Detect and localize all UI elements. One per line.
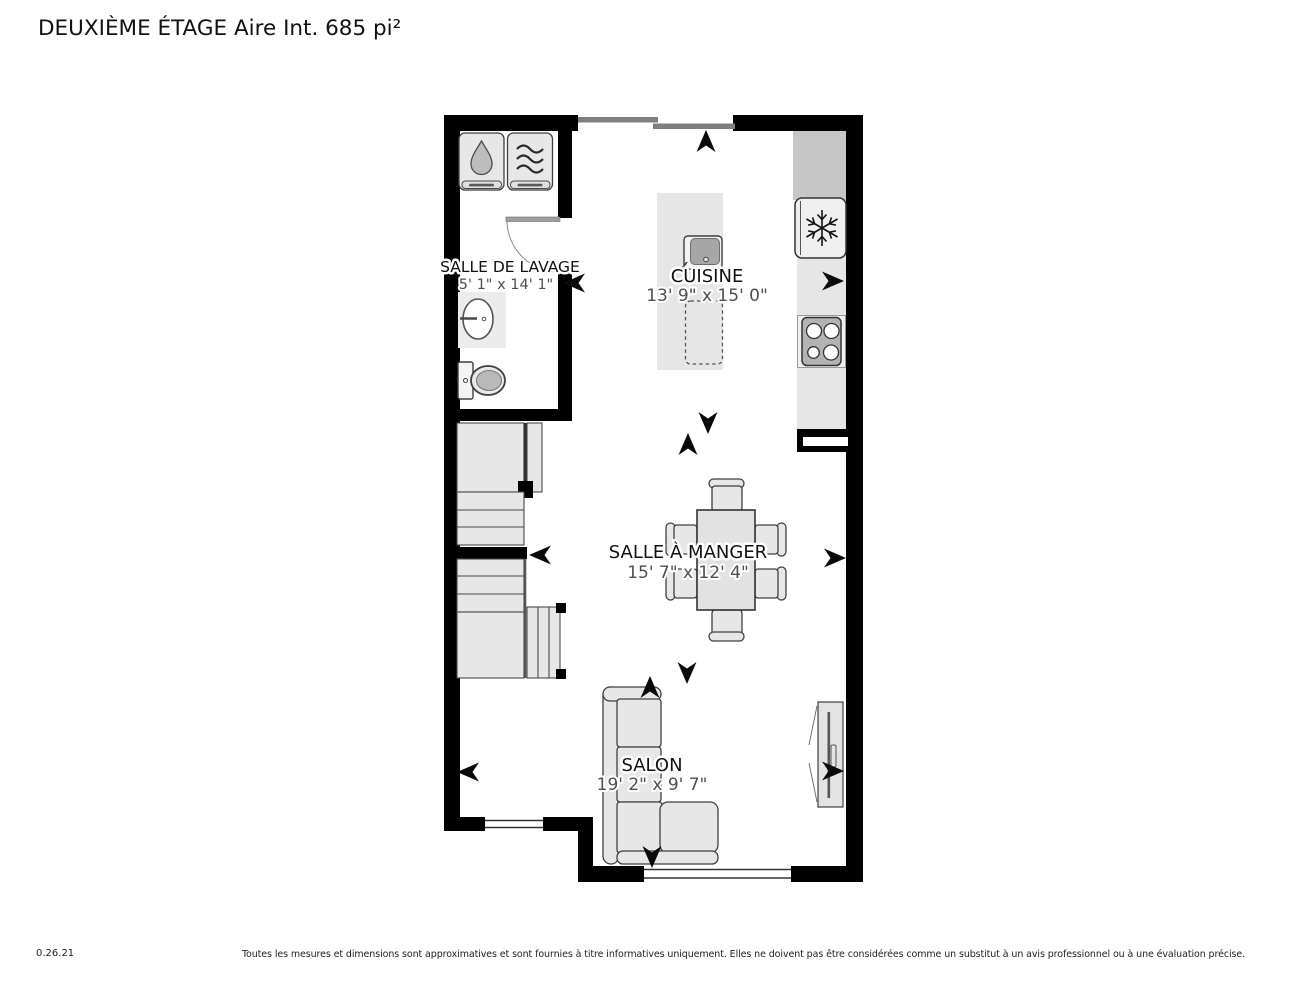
window-bottom-left — [485, 817, 543, 831]
washer — [459, 133, 504, 190]
wall-laundry-lower — [558, 273, 572, 421]
arrow-up-dining — [679, 433, 698, 455]
dining-chair — [755, 567, 786, 600]
tv-screen — [828, 712, 831, 798]
arrow-left-salon — [457, 763, 479, 782]
wall-laundry-upper — [558, 131, 572, 218]
laundry-room — [459, 133, 553, 190]
tv-unit — [809, 702, 843, 807]
laundry-dims: 5' 1" x 14' 1" — [459, 277, 553, 293]
stair-landing-upper — [457, 423, 524, 492]
salon-dims: 19' 2" x 9' 7" — [597, 775, 708, 795]
wall-right — [846, 115, 863, 882]
salon-label: SALON — [621, 755, 682, 776]
dining-chair — [709, 610, 744, 641]
fridge — [795, 198, 846, 258]
stair-rail — [525, 559, 527, 678]
window-top-1 — [578, 117, 658, 123]
counter-dark — [793, 131, 846, 200]
wall-top-right — [733, 115, 863, 131]
arrow-right-dining — [824, 549, 846, 568]
stove — [798, 316, 846, 368]
kitchen-dims: 13' 9" x 15' 0" — [646, 286, 768, 306]
wall-stairs-mid — [450, 547, 527, 559]
disclaimer-text: Toutes les mesures et dimensions sont ap… — [242, 949, 1245, 960]
wall-top-left — [444, 115, 578, 131]
kitchen-label: CUISINE — [671, 266, 744, 287]
stair-steps-upper — [457, 492, 524, 545]
bathroom — [458, 292, 506, 399]
stair-landing-lower — [457, 612, 524, 678]
floor-plan-page: DEUXIÈME ÉTAGE Aire Int. 685 pi² — [0, 0, 1295, 1000]
toilet — [458, 362, 505, 399]
door-leaf — [506, 217, 560, 222]
stair-steps-lower — [457, 559, 524, 612]
arrow-down-salon — [678, 662, 697, 684]
wall-bottom-left-a — [444, 817, 485, 831]
wall-bathroom-bottom — [444, 409, 572, 421]
window-top-2 — [653, 124, 735, 130]
passthrough-opening — [803, 437, 848, 446]
wall-bottom-a — [578, 866, 644, 882]
floor-plan: SALLE DE LAVAGE 5' 1" x 14' 1" CUISINE 1… — [0, 0, 1295, 1000]
kitchen-sink — [682, 236, 722, 269]
dining-label: SALLE À MANGER — [609, 541, 767, 563]
arrow-left-stairs — [529, 546, 551, 565]
version-number: 0.26.21 — [36, 948, 74, 959]
dining-dims: 15' 7" x 12' 4" — [627, 563, 749, 583]
dining-chair — [709, 479, 744, 511]
dryer — [508, 133, 553, 190]
laundry-label: SALLE DE LAVAGE — [440, 258, 580, 276]
arrow-up-kitchen — [697, 130, 716, 152]
window-bottom — [644, 866, 791, 882]
arrow-down-dining — [699, 412, 718, 434]
